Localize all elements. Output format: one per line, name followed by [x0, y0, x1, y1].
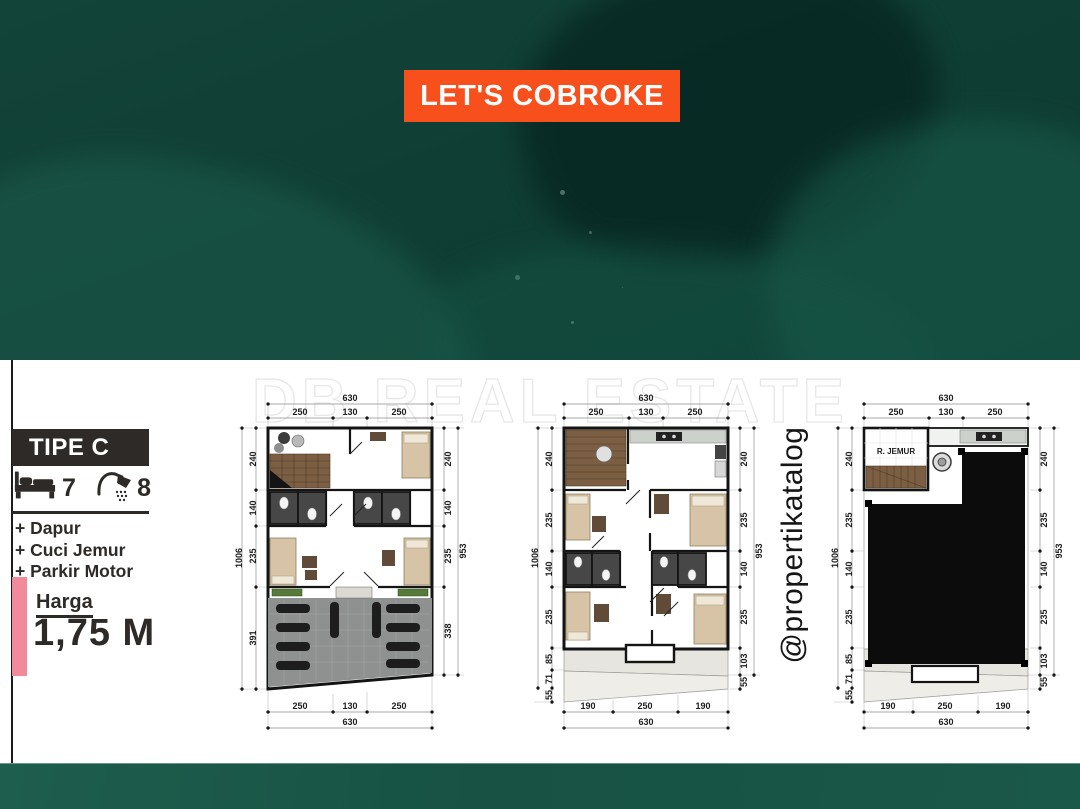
- svg-text:71: 71: [544, 674, 554, 684]
- footer-bar: [0, 763, 1080, 809]
- svg-text:630: 630: [342, 393, 357, 403]
- type-badge: TIPE C: [12, 429, 149, 466]
- svg-text:140: 140: [844, 561, 854, 576]
- bedroom-count: 7: [62, 474, 76, 503]
- building: [564, 428, 728, 702]
- svg-text:953: 953: [458, 543, 468, 558]
- svg-text:240: 240: [739, 451, 749, 466]
- divider-rule: [11, 360, 13, 765]
- svg-text:391: 391: [248, 630, 258, 645]
- svg-text:235: 235: [1039, 512, 1049, 527]
- building: [268, 428, 432, 689]
- bathroom-stat: 8: [94, 468, 151, 509]
- bed-icon: [13, 469, 57, 508]
- feature-item: + Parkir Motor: [15, 561, 133, 583]
- social-handle: @propertikatalog: [776, 427, 810, 664]
- svg-text:250: 250: [987, 407, 1002, 417]
- svg-text:85: 85: [844, 654, 854, 664]
- svg-text:235: 235: [544, 609, 554, 624]
- svg-text:140: 140: [443, 500, 453, 515]
- svg-text:250: 250: [687, 407, 702, 417]
- svg-text:240: 240: [1039, 451, 1049, 466]
- svg-text:1006: 1006: [234, 548, 244, 568]
- svg-text:235: 235: [1039, 609, 1049, 624]
- svg-text:103: 103: [1039, 653, 1049, 668]
- banner-label: LET'S COBROKE: [420, 80, 664, 113]
- svg-text:630: 630: [342, 717, 357, 727]
- svg-text:630: 630: [938, 717, 953, 727]
- svg-text:630: 630: [638, 717, 653, 727]
- svg-text:130: 130: [342, 407, 357, 417]
- svg-text:235: 235: [544, 512, 554, 527]
- floor-plan-roof: R. JEMUR 630 250 130 250 1006 240 235 14…: [828, 390, 1066, 740]
- svg-text:240: 240: [544, 451, 554, 466]
- svg-text:630: 630: [638, 393, 653, 403]
- svg-text:71: 71: [844, 674, 854, 684]
- svg-text:55: 55: [1039, 677, 1049, 687]
- svg-text:103: 103: [739, 653, 749, 668]
- content-area: DB REAL ESTATE TIPE C 7: [0, 360, 1080, 763]
- svg-text:953: 953: [754, 543, 764, 558]
- shower-icon: [94, 468, 132, 509]
- svg-text:130: 130: [342, 701, 357, 711]
- svg-text:140: 140: [1039, 561, 1049, 576]
- svg-text:190: 190: [880, 701, 895, 711]
- room-label: R. JEMUR: [877, 447, 915, 456]
- svg-text:250: 250: [588, 407, 603, 417]
- svg-text:235: 235: [739, 512, 749, 527]
- svg-text:250: 250: [292, 701, 307, 711]
- svg-text:630: 630: [938, 393, 953, 403]
- svg-text:190: 190: [695, 701, 710, 711]
- hero-background: LET'S COBROKE: [0, 0, 1080, 360]
- stats-row: 7 8: [13, 468, 151, 508]
- svg-text:235: 235: [248, 548, 258, 563]
- svg-text:1006: 1006: [830, 548, 840, 568]
- floor-plan-upper: 630 250 130 250 1006 240 235 140 235 85 …: [528, 390, 766, 740]
- feature-item: + Cuci Jemur: [15, 540, 133, 562]
- bedroom-stat: 7: [13, 469, 76, 508]
- svg-text:55: 55: [844, 690, 854, 700]
- svg-text:235: 235: [844, 512, 854, 527]
- svg-text:250: 250: [391, 701, 406, 711]
- stats-divider: [12, 511, 149, 514]
- svg-text:130: 130: [938, 407, 953, 417]
- bathroom-count: 8: [137, 474, 151, 503]
- feature-list: + Dapur + Cuci Jemur + Parkir Motor: [15, 518, 133, 583]
- svg-text:235: 235: [443, 548, 453, 563]
- svg-text:190: 190: [580, 701, 595, 711]
- svg-text:85: 85: [544, 654, 554, 664]
- svg-text:250: 250: [937, 701, 952, 711]
- svg-text:338: 338: [443, 623, 453, 638]
- price-value: 1,75 M: [33, 612, 155, 655]
- svg-text:250: 250: [391, 407, 406, 417]
- water-drops-decoration: [560, 190, 565, 195]
- svg-text:250: 250: [888, 407, 903, 417]
- svg-text:250: 250: [292, 407, 307, 417]
- price-accent-bar: [12, 577, 27, 676]
- svg-text:140: 140: [248, 500, 258, 515]
- svg-text:140: 140: [544, 561, 554, 576]
- svg-text:240: 240: [248, 451, 258, 466]
- type-label: TIPE C: [29, 434, 109, 462]
- building: R. JEMUR: [864, 428, 1028, 702]
- svg-text:250: 250: [637, 701, 652, 711]
- svg-text:235: 235: [739, 609, 749, 624]
- svg-text:235: 235: [844, 609, 854, 624]
- svg-text:953: 953: [1054, 543, 1064, 558]
- svg-text:55: 55: [739, 677, 749, 687]
- svg-text:240: 240: [443, 451, 453, 466]
- feature-item: + Dapur: [15, 518, 133, 540]
- svg-text:240: 240: [844, 451, 854, 466]
- svg-text:140: 140: [739, 561, 749, 576]
- svg-text:1006: 1006: [530, 548, 540, 568]
- svg-text:130: 130: [638, 407, 653, 417]
- floor-plan-ground: 630 250 130 250 1006 240 140 235 391 240…: [232, 390, 470, 740]
- svg-text:55: 55: [544, 690, 554, 700]
- flyer: LET'S COBROKE DB REAL ESTATE TIPE C: [0, 0, 1080, 809]
- svg-text:190: 190: [995, 701, 1010, 711]
- cobroke-banner: LET'S COBROKE: [404, 70, 680, 122]
